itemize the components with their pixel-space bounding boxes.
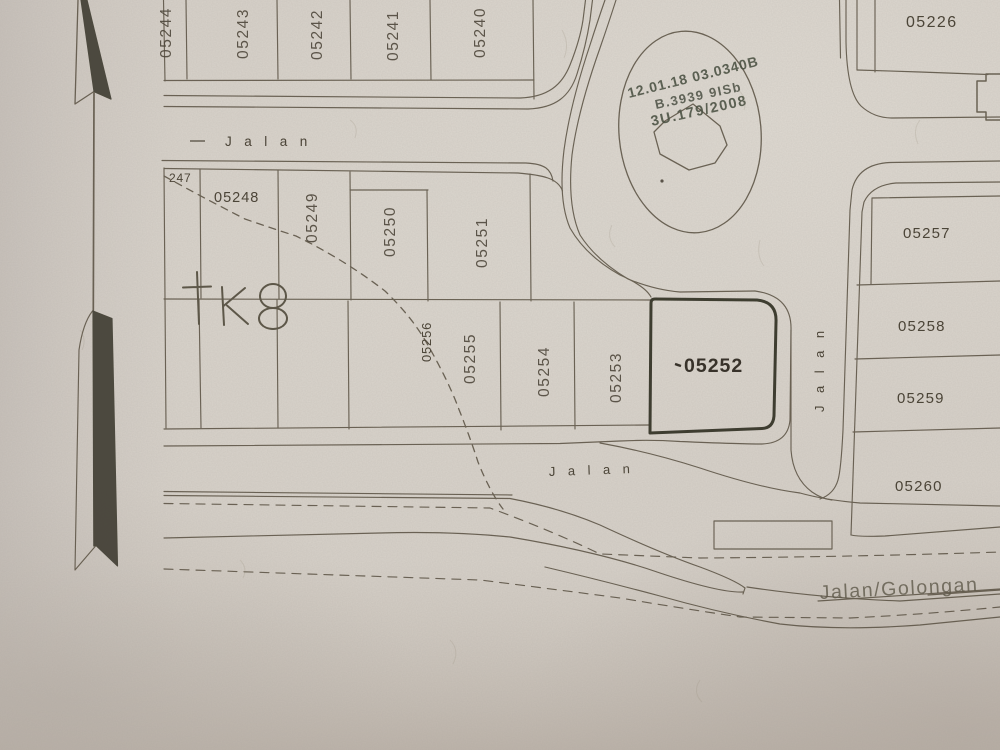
svg-text:05251: 05251 <box>474 217 491 268</box>
svg-text:247: 247 <box>169 171 191 185</box>
svg-text:05256: 05256 <box>419 322 434 362</box>
svg-text:05254: 05254 <box>536 346 553 397</box>
svg-text:05260: 05260 <box>895 478 943 495</box>
svg-text:05250: 05250 <box>382 206 399 257</box>
svg-text:05253: 05253 <box>608 352 625 403</box>
svg-text:05255: 05255 <box>462 333 479 384</box>
svg-text:05249: 05249 <box>304 192 321 243</box>
svg-text:05243: 05243 <box>235 8 252 59</box>
svg-text:Jalan: Jalan <box>225 134 320 149</box>
svg-text:05248: 05248 <box>214 190 259 206</box>
svg-text:05242: 05242 <box>309 9 326 60</box>
svg-text:Jalan: Jalan <box>812 318 827 412</box>
svg-text:05257: 05257 <box>903 225 951 242</box>
svg-text:05244: 05244 <box>158 7 175 58</box>
svg-text:05226: 05226 <box>906 14 958 31</box>
svg-text:05259: 05259 <box>897 390 945 407</box>
svg-text:05240: 05240 <box>472 7 489 58</box>
svg-text:05252: 05252 <box>684 355 743 377</box>
svg-text:05241: 05241 <box>385 10 402 61</box>
svg-text:05258: 05258 <box>898 318 946 335</box>
